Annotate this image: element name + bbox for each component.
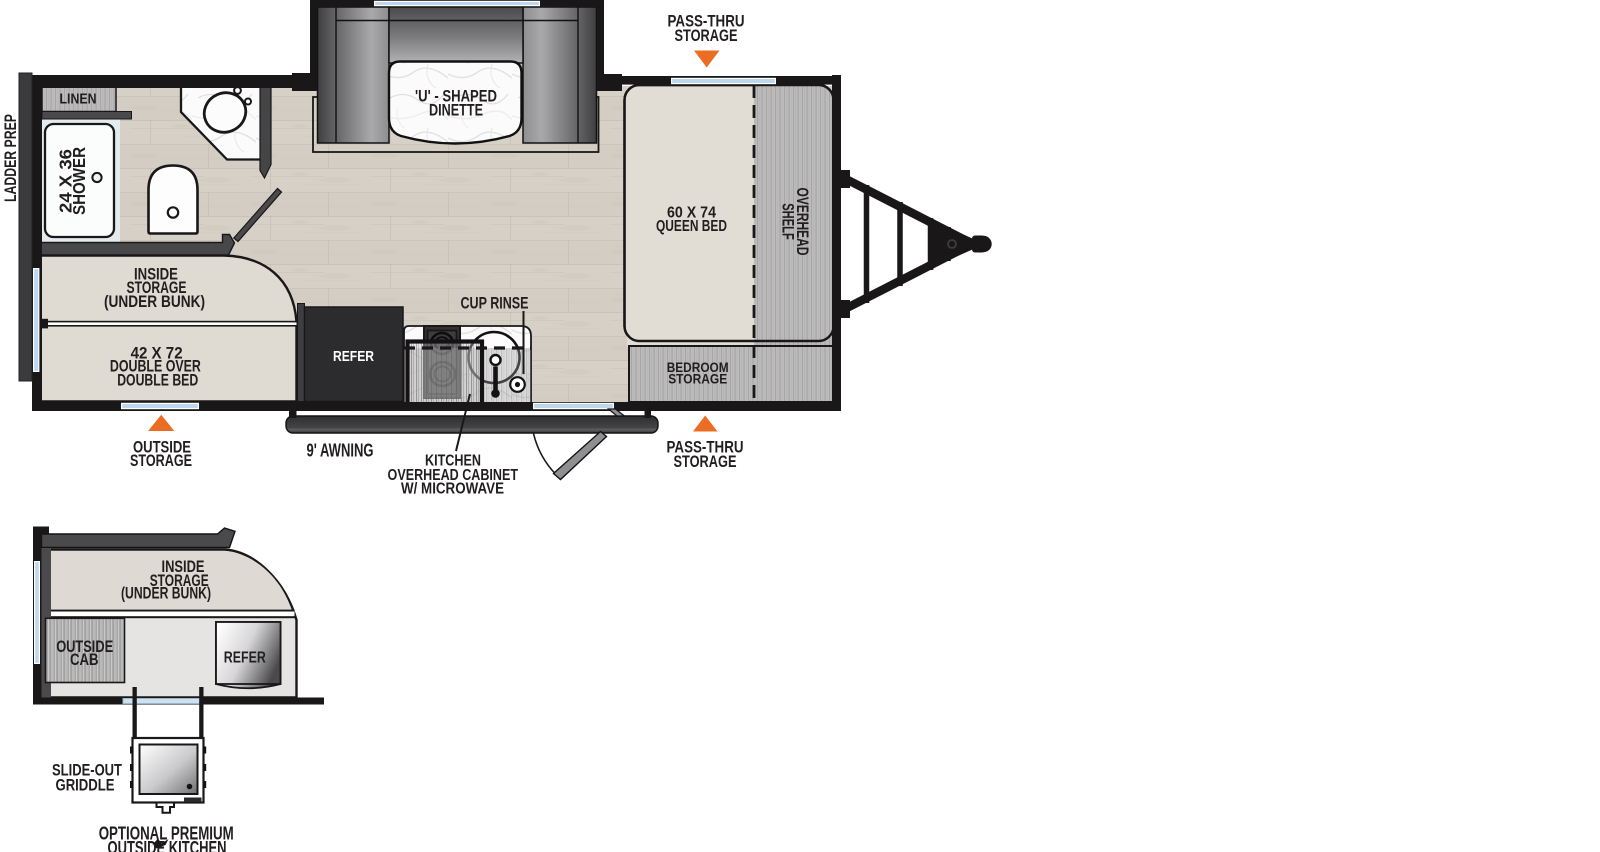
svg-text:STORAGE: STORAGE — [668, 372, 727, 387]
svg-text:9' AWNING: 9' AWNING — [307, 440, 374, 460]
svg-text:SHELF: SHELF — [779, 203, 798, 240]
svg-text:W/ MICROWAVE: W/ MICROWAVE — [401, 481, 504, 498]
svg-text:REFER: REFER — [224, 650, 266, 667]
svg-text:REFER: REFER — [333, 348, 374, 365]
svg-text:STORAGE: STORAGE — [674, 453, 737, 471]
svg-text:STORAGE: STORAGE — [675, 27, 738, 45]
svg-text:STORAGE: STORAGE — [130, 452, 192, 470]
svg-text:GRIDDLE: GRIDDLE — [56, 776, 115, 795]
svg-text:LINEN: LINEN — [60, 91, 97, 108]
svg-text:CUP RINSE: CUP RINSE — [461, 295, 529, 313]
svg-text:LADDER PREP: LADDER PREP — [1, 114, 20, 202]
svg-text:(UNDER BUNK): (UNDER BUNK) — [121, 585, 211, 603]
svg-text:SHOWER: SHOWER — [69, 147, 89, 215]
svg-text:DINETTE: DINETTE — [429, 102, 483, 120]
svg-text:DOUBLE BED: DOUBLE BED — [117, 372, 198, 390]
svg-text:QUEEN BED: QUEEN BED — [656, 218, 727, 235]
svg-text:CAB: CAB — [70, 651, 99, 669]
svg-text:(UNDER BUNK): (UNDER BUNK) — [104, 293, 205, 311]
